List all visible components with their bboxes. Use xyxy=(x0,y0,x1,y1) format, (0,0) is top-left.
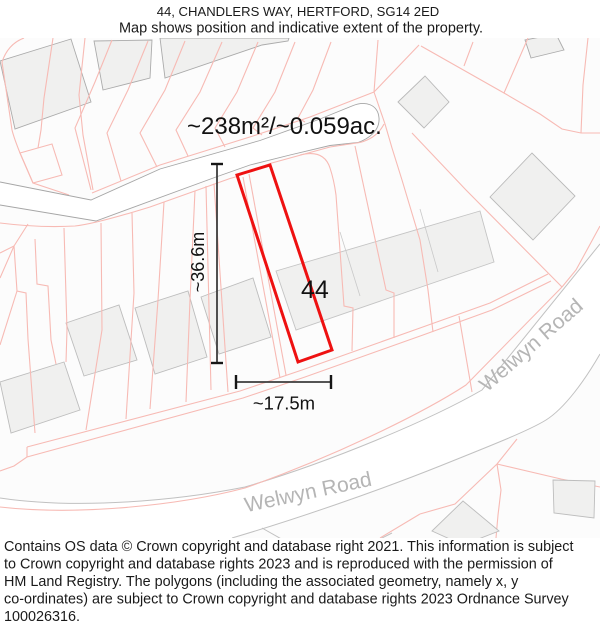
svg-text:44, CHANDLERS WAY, HERTFORD, S: 44, CHANDLERS WAY, HERTFORD, SG14 2ED xyxy=(157,4,440,19)
svg-text:~36.6m: ~36.6m xyxy=(188,232,208,293)
svg-text:Contains OS data © Crown copyr: Contains OS data © Crown copyright and d… xyxy=(4,539,573,555)
svg-text:HM Land Registry. The polygons: HM Land Registry. The polygons (includin… xyxy=(4,574,519,590)
svg-text:to Crown copyright and databas: to Crown copyright and database rights 2… xyxy=(4,557,554,573)
svg-text:44: 44 xyxy=(301,276,329,304)
svg-text:100026316.: 100026316. xyxy=(4,609,80,625)
svg-text:~238m²/~0.059ac.: ~238m²/~0.059ac. xyxy=(187,113,382,140)
svg-text:Map shows position and indicat: Map shows position and indicative extent… xyxy=(119,21,483,37)
svg-text:co-ordinates) are subject to C: co-ordinates) are subject to Crown copyr… xyxy=(4,592,570,608)
svg-text:~17.5m: ~17.5m xyxy=(253,393,315,414)
